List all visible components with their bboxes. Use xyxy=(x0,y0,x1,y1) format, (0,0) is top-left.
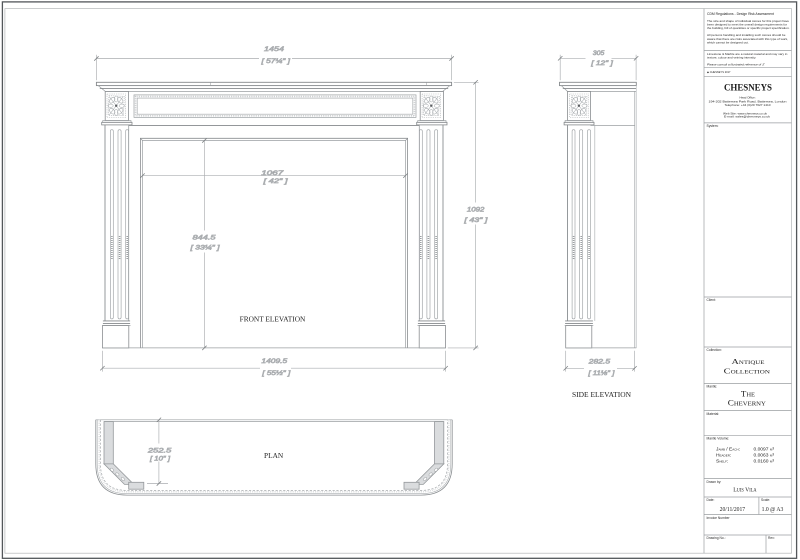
svg-text:[ 11⅛" ]: [ 11⅛" ] xyxy=(587,370,614,377)
svg-text:Date:: Date: xyxy=(707,498,715,502)
svg-text:Mantle Volume:: Mantle Volume: xyxy=(707,437,730,441)
svg-text:1.0 @ A3: 1.0 @ A3 xyxy=(762,507,784,513)
svg-text:282.5: 282.5 xyxy=(588,359,611,366)
svg-text:20/11/2017: 20/11/2017 xyxy=(720,506,746,513)
svg-text:0.0160 m³: 0.0160 m³ xyxy=(754,458,775,464)
svg-text:Collection: Collection xyxy=(724,366,771,375)
svg-text:[ 43" ]: [ 43" ] xyxy=(463,217,488,224)
svg-text:the building, bill of quantiti: the building, bill of quantities or spec… xyxy=(707,26,790,30)
svg-text:[ 12" ]: [ 12" ] xyxy=(590,60,613,67)
svg-text:which cannot be designed out.: which cannot be designed out. xyxy=(707,40,749,44)
svg-text:Cheverny: Cheverny xyxy=(728,398,767,407)
svg-text:Antique: Antique xyxy=(732,357,765,366)
svg-text:252.5: 252.5 xyxy=(147,447,172,454)
svg-text:0.0063 m³: 0.0063 m³ xyxy=(754,452,775,458)
svg-text:Collection:: Collection: xyxy=(707,348,722,352)
svg-text:texture, colour and veining in: texture, colour and veining intensity. xyxy=(707,56,756,60)
svg-text:Rev:: Rev: xyxy=(768,536,775,540)
svg-text:Jamb / Each:: Jamb / Each: xyxy=(716,446,740,452)
svg-text:844.5: 844.5 xyxy=(193,234,216,241)
svg-text:[ 10" ]: [ 10" ] xyxy=(149,455,170,462)
svg-text:The: The xyxy=(741,390,755,399)
svg-text:Client:: Client: xyxy=(707,298,716,302)
svg-text:CHESNEYS: CHESNEYS xyxy=(724,84,772,94)
svg-text:0.0097 m³: 0.0097 m³ xyxy=(754,446,775,452)
svg-text:1454: 1454 xyxy=(264,46,284,53)
svg-text:CDM Regulations - Design Ris: CDM Regulations - Design Risk Assessment xyxy=(707,12,774,16)
svg-text:Material:: Material: xyxy=(707,412,720,416)
svg-text:Drawing No.:: Drawing No.: xyxy=(707,536,726,540)
svg-text:Drawn by:: Drawn by: xyxy=(707,480,722,484)
svg-text:FRONT ELEVATION: FRONT ELEVATION xyxy=(240,315,306,323)
svg-text:Please consult a illustrated r: Please consult a illustrated reference o… xyxy=(707,63,765,67)
svg-text:305: 305 xyxy=(593,50,605,57)
svg-text:Header:: Header: xyxy=(716,452,731,458)
svg-text:[ 33¼" ]: [ 33¼" ] xyxy=(189,245,219,252)
svg-text:Mantle:: Mantle: xyxy=(707,384,718,388)
svg-text:1409.5: 1409.5 xyxy=(261,358,287,365)
svg-text:PLAN: PLAN xyxy=(264,452,283,460)
svg-text:1067: 1067 xyxy=(261,170,283,177)
svg-text:[ 57¼" ]: [ 57¼" ] xyxy=(260,58,290,65)
svg-text:Scale:: Scale: xyxy=(761,498,770,502)
svg-text:Shelf:: Shelf: xyxy=(716,458,728,464)
svg-text:System:: System: xyxy=(707,124,719,128)
svg-text:1092: 1092 xyxy=(467,207,485,214)
svg-text:◆ CHESNEYS 2017: ◆ CHESNEYS 2017 xyxy=(707,70,731,74)
svg-text:[ 55½" ]: [ 55½" ] xyxy=(261,369,290,377)
svg-text:Telephone: +44 (0)20 7627 1410: Telephone: +44 (0)20 7627 1410 xyxy=(725,103,771,107)
svg-text:Luis Vila: Luis Vila xyxy=(733,487,757,494)
svg-text:Invoice Number: Invoice Number xyxy=(707,516,731,520)
svg-text:E-mail: sales@chesneys.co.uk: E-mail: sales@chesneys.co.uk xyxy=(724,115,771,119)
svg-text:SIDE ELEVATION: SIDE ELEVATION xyxy=(572,391,631,399)
svg-text:[ 42" ]: [ 42" ] xyxy=(262,178,288,185)
